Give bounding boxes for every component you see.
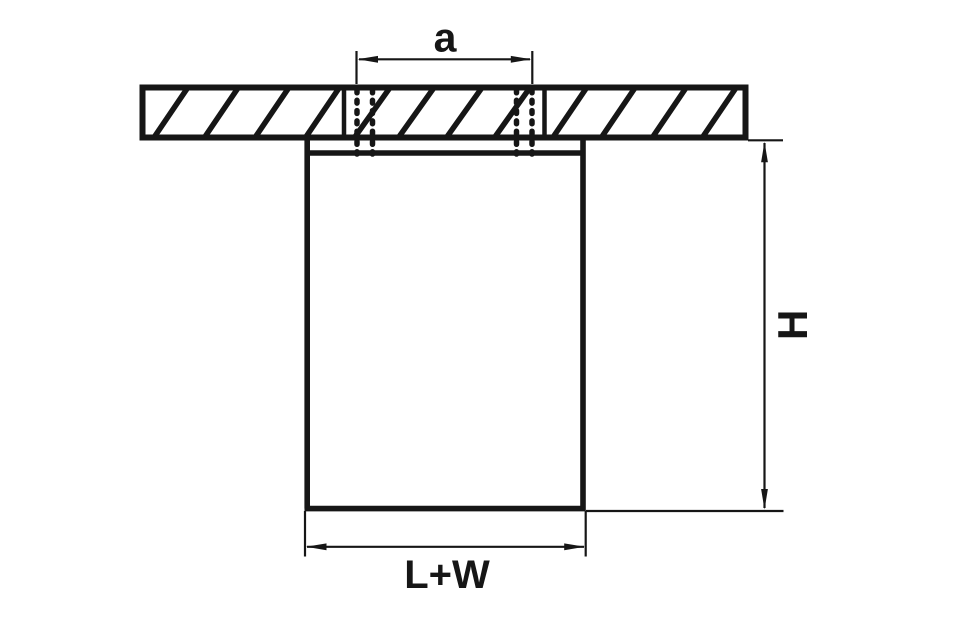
svg-text:H: H xyxy=(769,310,816,340)
svg-text:a: a xyxy=(434,15,458,61)
svg-text:L+W: L+W xyxy=(404,553,490,597)
